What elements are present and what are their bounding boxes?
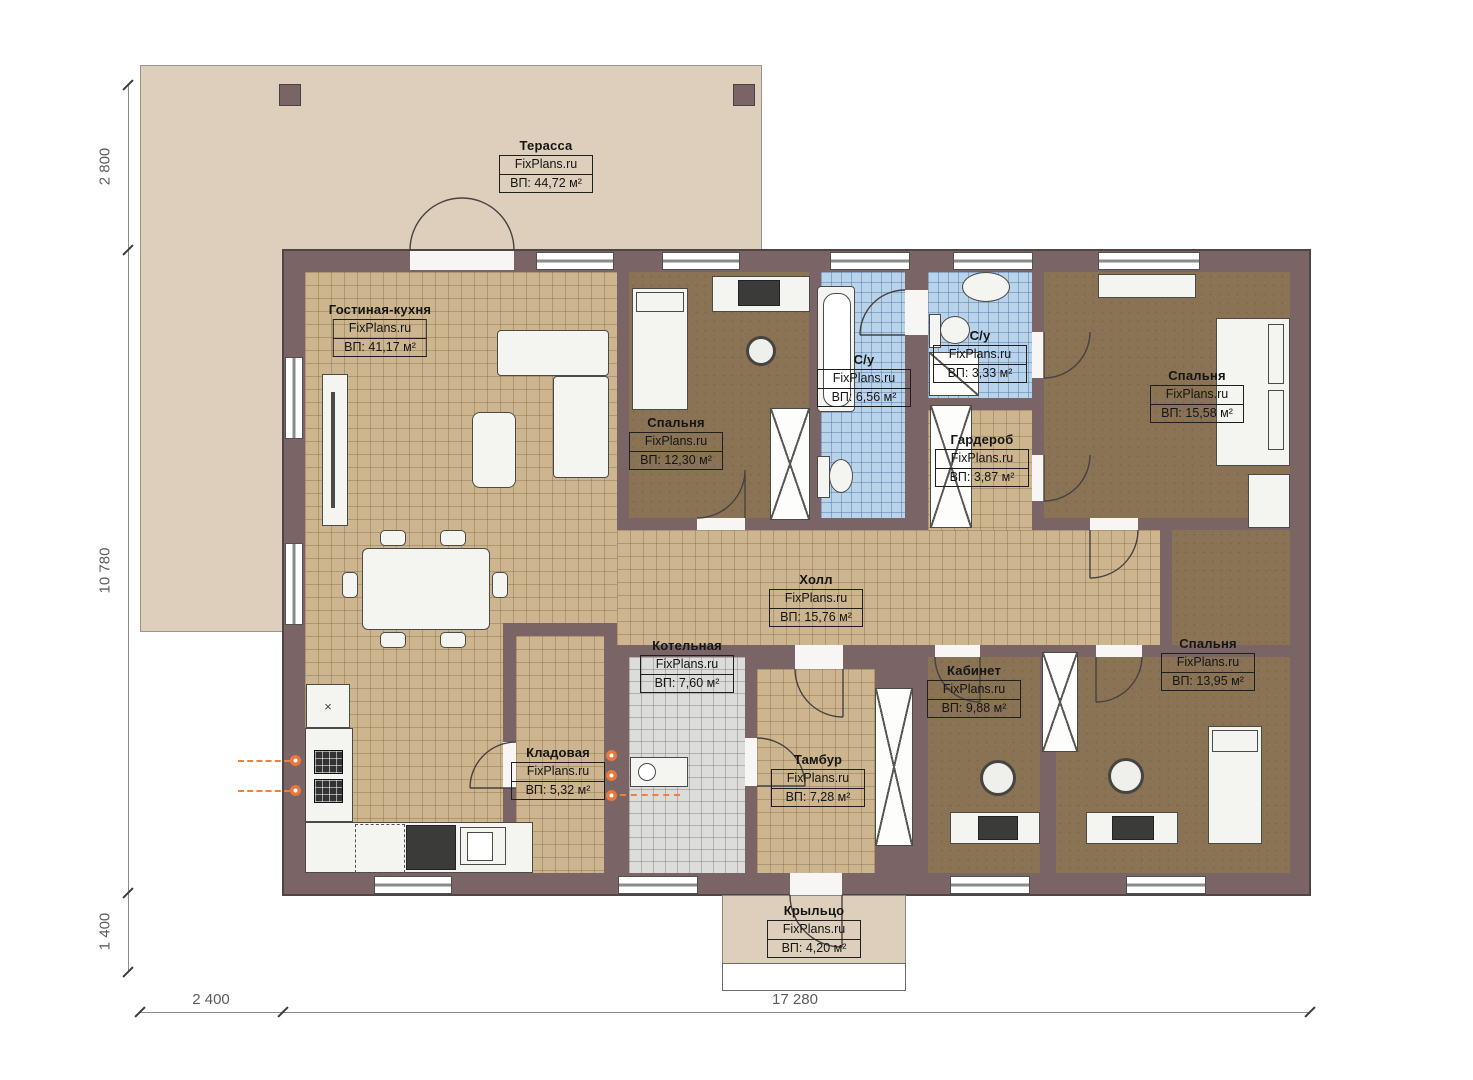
- room-label-bathroom-1: С/у FixPlans.ru ВП: 6,56 м²: [817, 352, 911, 407]
- room-area: ВП: 5,32 м²: [511, 782, 605, 801]
- window: [830, 252, 910, 270]
- brand-tag: FixPlans.ru: [1161, 653, 1255, 673]
- dim-house-width: 17 280: [750, 991, 840, 1008]
- door-opening: [697, 518, 745, 530]
- pillow: [1268, 390, 1284, 450]
- room-name: С/у: [854, 352, 875, 367]
- closet: [1042, 652, 1078, 752]
- sofa: [553, 376, 609, 478]
- chair: [492, 572, 508, 598]
- room-name: С/у: [970, 328, 991, 343]
- pillow: [1212, 730, 1258, 752]
- door-opening: [905, 290, 928, 335]
- door-opening: [1032, 455, 1044, 501]
- brand-tag: FixPlans.ru: [1150, 385, 1244, 405]
- room-label-wardrobe: Гардероб FixPlans.ru ВП: 3,87 м²: [935, 432, 1029, 487]
- room-label-porch: Крыльцо FixPlans.ru ВП: 4,20 м²: [767, 903, 861, 958]
- terrace-post: [733, 84, 755, 106]
- chair: [380, 632, 406, 648]
- door-opening: [1032, 332, 1044, 378]
- window: [953, 252, 1033, 270]
- dim-terrace-depth: 2 800: [97, 132, 114, 202]
- radiator-icon: [606, 750, 617, 761]
- sink-basin: [467, 832, 493, 861]
- room-area: ВП: 3,87 м²: [935, 469, 1029, 488]
- window: [1126, 876, 1206, 894]
- room-name: Кладовая: [526, 745, 590, 760]
- door-opening: [935, 645, 980, 657]
- coffee-table: [472, 412, 516, 488]
- door-opening: [790, 873, 842, 895]
- desk-chair: [980, 760, 1016, 796]
- radiator-pipe: [238, 760, 290, 762]
- dim-terrace-offset: 2 400: [171, 991, 251, 1008]
- room-label-bathroom-2: С/у FixPlans.ru ВП: 3,33 м²: [933, 328, 1027, 383]
- tv-icon: [331, 392, 335, 508]
- brand-tag: FixPlans.ru: [771, 769, 865, 789]
- dresser: [1248, 474, 1290, 528]
- brand-tag: FixPlans.ru: [817, 369, 911, 389]
- toilet-bowl: [829, 459, 853, 493]
- brand-tag: FixPlans.ru: [933, 345, 1027, 365]
- room-label-vestibule: Тамбур FixPlans.ru ВП: 7,28 м²: [771, 752, 865, 807]
- room-area: ВП: 44,72 м²: [499, 175, 593, 194]
- room-label-bedroom-1: Спальня FixPlans.ru ВП: 12,30 м²: [629, 415, 723, 470]
- room-area: ВП: 15,76 м²: [769, 609, 863, 628]
- window: [536, 252, 614, 270]
- room-area: ВП: 9,88 м²: [927, 700, 1021, 719]
- printer: [738, 280, 780, 306]
- dishwasher: [406, 825, 456, 870]
- room-label-terrace: Терасса FixPlans.ru ВП: 44,72 м²: [499, 138, 593, 193]
- radiator-icon: [606, 790, 617, 801]
- chair: [380, 530, 406, 546]
- room-area: ВП: 12,30 м²: [629, 452, 723, 471]
- radiator-pipe: [620, 794, 680, 796]
- counter-dashed-area: [355, 824, 405, 873]
- room-name: Гардероб: [950, 432, 1013, 447]
- room-name: Спальня: [1168, 368, 1226, 383]
- room-area: ВП: 15,58 м²: [1150, 405, 1244, 424]
- room-name: Холл: [799, 572, 832, 587]
- brand-tag: FixPlans.ru: [927, 680, 1021, 700]
- window: [285, 357, 303, 439]
- room-area: ВП: 13,95 м²: [1161, 673, 1255, 692]
- brand-tag: FixPlans.ru: [511, 762, 605, 782]
- brand-tag: FixPlans.ru: [769, 589, 863, 609]
- window: [662, 252, 740, 270]
- room-area: ВП: 41,17 м²: [333, 339, 427, 358]
- dimension-line-bottom: [140, 1012, 1310, 1013]
- room-name: Спальня: [1179, 636, 1237, 651]
- printer: [1112, 816, 1154, 840]
- kitchen-counter: [305, 728, 353, 822]
- dim-porch-depth: 1 400: [97, 897, 114, 967]
- dining-table: [362, 548, 490, 630]
- door-opening: [1090, 518, 1138, 530]
- radiator-pipe: [238, 790, 290, 792]
- room-name: Терасса: [520, 138, 573, 153]
- brand-tag: FixPlans.ru: [767, 920, 861, 940]
- porch-step: [722, 963, 906, 991]
- sofa: [497, 330, 609, 376]
- tv-unit: [322, 374, 348, 526]
- room-name: Гостиная-кухня: [329, 302, 431, 317]
- door-opening: [1096, 645, 1142, 657]
- dim-house-height: 10 780: [97, 531, 114, 611]
- pillow: [1268, 324, 1284, 384]
- chair: [440, 632, 466, 648]
- room-area: ВП: 3,33 м²: [933, 365, 1027, 384]
- brand-tag: FixPlans.ru: [640, 655, 734, 675]
- stove-icon: [314, 779, 343, 803]
- stove-icon: [314, 750, 343, 774]
- chair: [342, 572, 358, 598]
- terrace-post: [279, 84, 301, 106]
- window: [950, 876, 1030, 894]
- room-floor-hall: [617, 530, 1160, 645]
- room-name: Крыльцо: [784, 903, 845, 918]
- window: [618, 876, 698, 894]
- desk-chair: [1108, 758, 1144, 794]
- room-area: ВП: 7,60 м²: [640, 675, 734, 694]
- door-opening: [745, 738, 757, 786]
- radiator-icon: [290, 785, 301, 796]
- room-label-boiler-room: Котельная FixPlans.ru ВП: 7,60 м²: [640, 638, 734, 693]
- brand-tag: FixPlans.ru: [935, 449, 1029, 469]
- closet: [1098, 274, 1196, 298]
- room-area: ВП: 7,28 м²: [771, 789, 865, 808]
- door-opening: [410, 251, 514, 270]
- fridge: ×: [306, 684, 350, 728]
- room-name: Котельная: [652, 638, 722, 653]
- radiator-icon: [290, 755, 301, 766]
- printer: [978, 816, 1018, 840]
- room-name: Спальня: [647, 415, 705, 430]
- room-label-hall: Холл FixPlans.ru ВП: 15,76 м²: [769, 572, 863, 627]
- room-area: ВП: 6,56 м²: [817, 389, 911, 408]
- room-label-living-kitchen: Гостиная-кухня FixPlans.ru ВП: 41,17 м²: [329, 302, 431, 357]
- room-label-pantry: Кладовая FixPlans.ru ВП: 5,32 м²: [511, 745, 605, 800]
- floor-plan: ×: [0, 0, 1473, 1080]
- brand-tag: FixPlans.ru: [499, 155, 593, 175]
- boiler-dial: [638, 763, 656, 781]
- brand-tag: FixPlans.ru: [333, 319, 427, 339]
- desk-chair: [746, 336, 776, 366]
- window: [285, 543, 303, 625]
- room-name: Тамбур: [794, 752, 842, 767]
- radiator-icon: [606, 770, 617, 781]
- room-label-bedroom-2: Спальня FixPlans.ru ВП: 15,58 м²: [1150, 368, 1244, 423]
- door-opening: [795, 645, 843, 669]
- window: [1098, 252, 1200, 270]
- window: [374, 876, 452, 894]
- closet: [770, 408, 810, 520]
- room-area: ВП: 4,20 м²: [767, 940, 861, 959]
- room-label-bedroom-3: Спальня FixPlans.ru ВП: 13,95 м²: [1161, 636, 1255, 691]
- brand-tag: FixPlans.ru: [629, 432, 723, 452]
- pillow: [636, 292, 684, 312]
- room-label-office: Кабинет FixPlans.ru ВП: 9,88 м²: [927, 663, 1021, 718]
- room-floor-bedroom-2-ext: [1172, 530, 1290, 645]
- washbasin: [962, 272, 1010, 302]
- room-name: Кабинет: [947, 663, 1001, 678]
- dimension-line-left: [128, 85, 129, 972]
- chair: [440, 530, 466, 546]
- closet: [875, 688, 913, 846]
